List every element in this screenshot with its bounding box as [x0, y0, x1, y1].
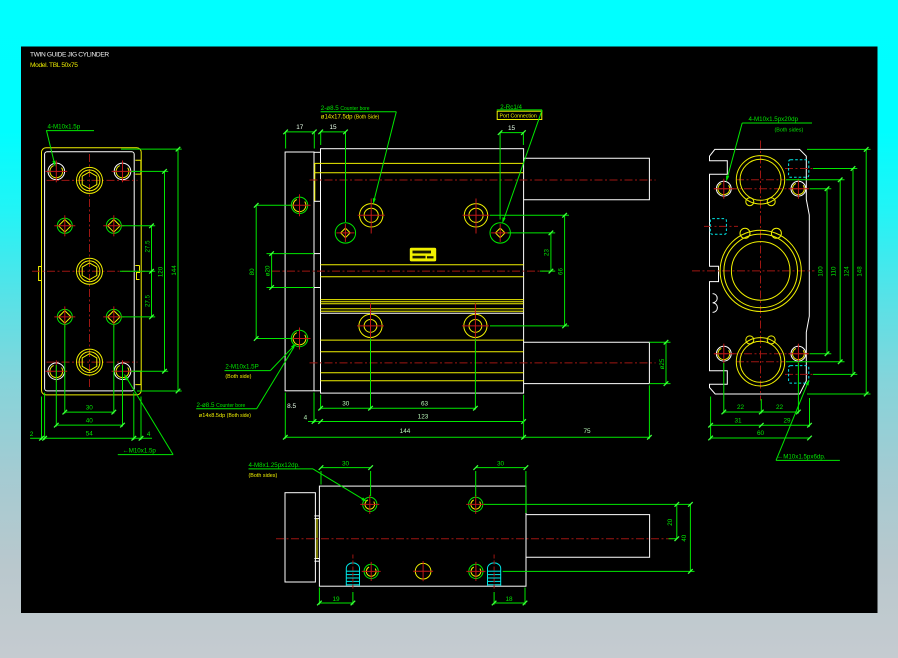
svg-text:17: 17: [296, 124, 304, 131]
svg-text:ø14x17.5dp (Both Side): ø14x17.5dp (Both Side): [321, 115, 380, 121]
svg-text:30: 30: [342, 460, 350, 467]
svg-text:←M10x1.5p: ←M10x1.5p: [123, 447, 157, 454]
svg-text:31: 31: [734, 417, 742, 424]
svg-text:63: 63: [421, 400, 429, 407]
svg-text:23: 23: [544, 249, 551, 256]
svg-text:4-M10x1.5p: 4-M10x1.5p: [48, 123, 81, 130]
svg-text:40: 40: [681, 534, 688, 541]
svg-text:18: 18: [505, 596, 513, 603]
svg-text:80: 80: [249, 268, 256, 275]
svg-text:ø20: ø20: [264, 265, 271, 276]
svg-text:29: 29: [783, 417, 791, 424]
svg-text:75: 75: [583, 428, 591, 435]
svg-text:22: 22: [737, 404, 745, 411]
svg-text:Model. TBL 50x75: Model. TBL 50x75: [30, 62, 78, 69]
svg-text:←M10x1.5px6dp.: ←M10x1.5px6dp.: [777, 454, 826, 461]
svg-text:4: 4: [304, 414, 308, 421]
svg-text:4-M10x1.5px20dp: 4-M10x1.5px20dp: [749, 116, 799, 123]
svg-text:4-M8x1.25px12dp.: 4-M8x1.25px12dp.: [249, 462, 301, 469]
svg-text:20: 20: [667, 518, 674, 525]
svg-text:30: 30: [342, 400, 350, 407]
svg-text:100: 100: [818, 266, 825, 277]
svg-text:2-M10x1.5P: 2-M10x1.5P: [225, 363, 258, 370]
svg-text:27.5: 27.5: [144, 240, 151, 253]
svg-text:30: 30: [497, 460, 505, 467]
svg-text:Port Connection: Port Connection: [500, 114, 537, 120]
svg-text:2-ø8.5 Counter bore: 2-ø8.5 Counter bore: [197, 402, 246, 409]
svg-text:40: 40: [86, 417, 94, 424]
svg-text:8.5: 8.5: [287, 403, 296, 410]
svg-text:4: 4: [147, 431, 151, 438]
svg-text:15: 15: [329, 124, 337, 131]
svg-text:(Both sides): (Both sides): [775, 127, 804, 133]
svg-text:27.5: 27.5: [144, 294, 151, 307]
svg-text:19: 19: [332, 596, 340, 603]
svg-text:54: 54: [86, 431, 94, 438]
svg-text:15: 15: [508, 125, 516, 132]
svg-text:66: 66: [557, 268, 564, 275]
svg-text:123: 123: [418, 414, 429, 421]
svg-text:(Both side): (Both side): [225, 374, 251, 380]
svg-text:(Both sides): (Both sides): [249, 473, 278, 479]
svg-text:ø25: ø25: [659, 358, 666, 369]
svg-text:60: 60: [757, 430, 765, 437]
svg-text:22: 22: [776, 404, 784, 411]
svg-text:124: 124: [844, 266, 851, 277]
svg-text:2-ø8.5 Counter bore: 2-ø8.5 Counter bore: [321, 105, 370, 112]
svg-text:110: 110: [831, 266, 838, 276]
svg-text:2: 2: [30, 431, 34, 438]
svg-text:TWIN GUIDE JIG CYLINDER: TWIN GUIDE JIG CYLINDER: [30, 52, 109, 59]
svg-text:30: 30: [86, 404, 94, 411]
svg-text:120: 120: [157, 266, 164, 277]
svg-text:144: 144: [400, 428, 411, 435]
svg-text:148: 148: [857, 266, 864, 277]
svg-text:144: 144: [171, 265, 178, 276]
svg-text:ø14x8.5dp (Both side): ø14x8.5dp (Both side): [199, 413, 252, 419]
